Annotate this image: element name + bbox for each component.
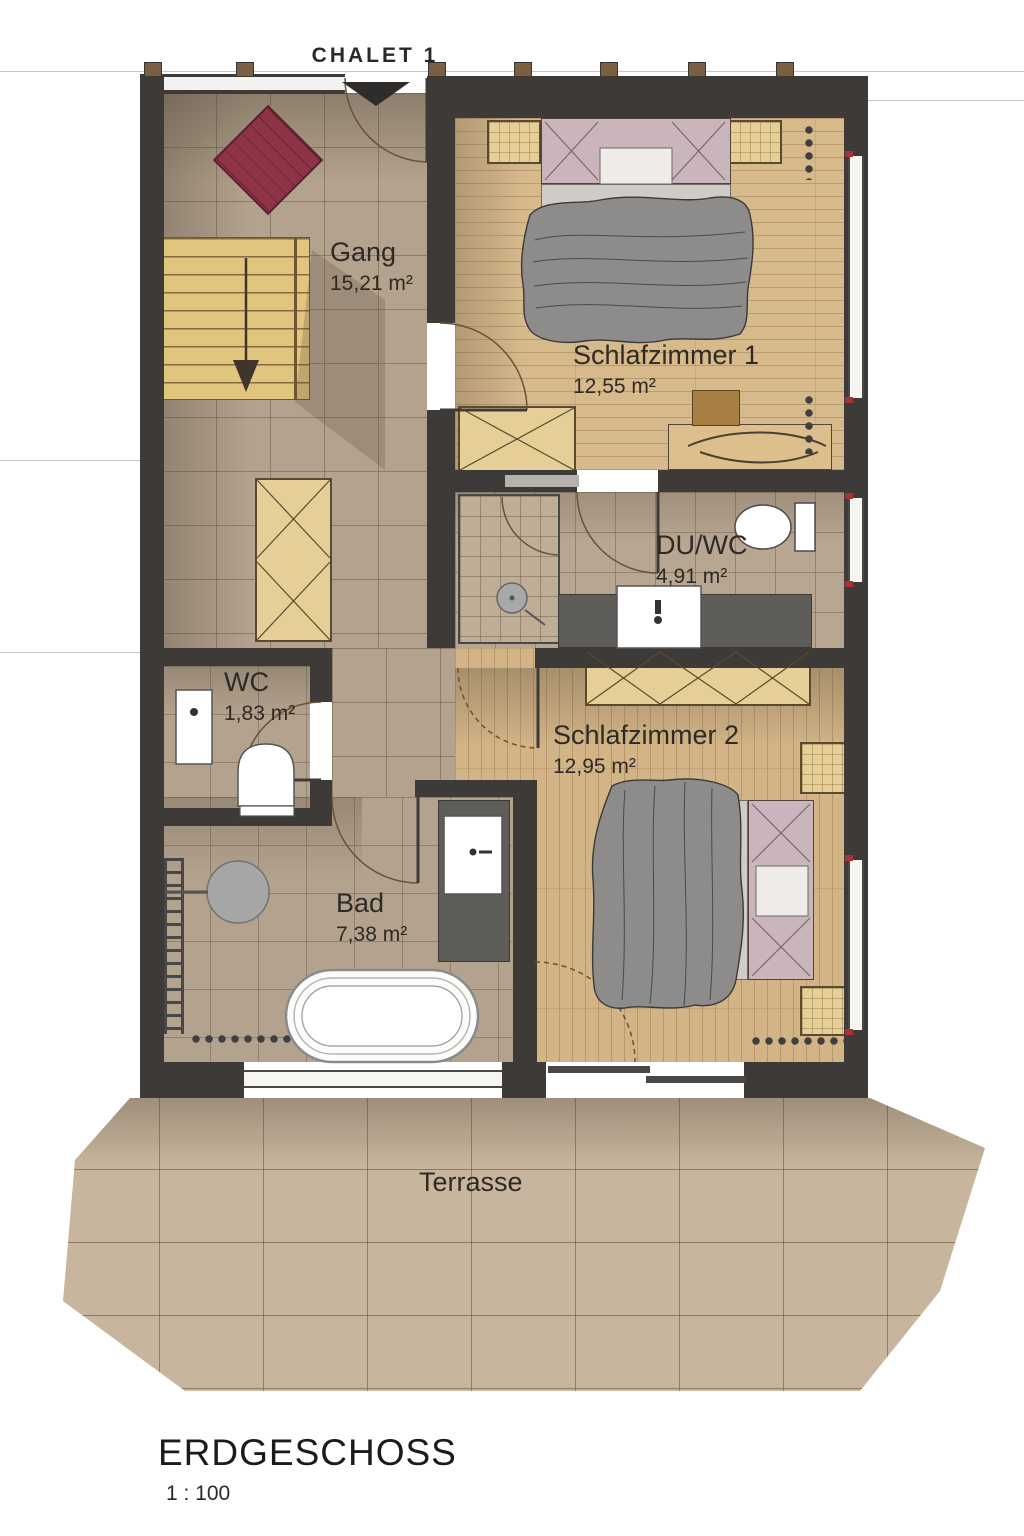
wall xyxy=(162,808,332,826)
hall-cabinet xyxy=(255,478,332,642)
bed2-sheet xyxy=(648,800,748,980)
room-area: 7,38 m² xyxy=(336,923,407,946)
front-glazing xyxy=(140,77,345,90)
room-area: 4,91 m² xyxy=(656,565,747,588)
corridor-floor xyxy=(332,648,455,798)
nightstand xyxy=(800,986,846,1036)
window-marker xyxy=(845,493,853,499)
room-name: Gang xyxy=(330,238,413,268)
window-marker xyxy=(845,397,853,403)
guide-line xyxy=(0,460,140,461)
window-marker xyxy=(845,1029,853,1035)
room-label-gang: Gang 15,21 m² xyxy=(330,238,413,295)
towel-radiator xyxy=(164,858,184,1034)
post xyxy=(776,62,794,77)
room-name: Schlafzimmer 1 xyxy=(573,341,759,371)
entrance-arrow-icon xyxy=(342,82,410,106)
terrace-window xyxy=(244,1070,502,1088)
wall-bottom xyxy=(140,1062,244,1098)
floor-title: ERDGESCHOSS xyxy=(158,1432,457,1474)
window xyxy=(848,498,864,582)
terrace-slider-door xyxy=(646,1076,746,1083)
room-area: 15,21 m² xyxy=(330,272,413,295)
window-marker xyxy=(845,855,853,861)
room-name: Bad xyxy=(336,889,407,919)
terrace-paving xyxy=(55,1096,995,1394)
room-name: WC xyxy=(224,668,295,698)
room-label-bad: Bad 7,38 m² xyxy=(336,889,407,946)
post xyxy=(688,62,706,77)
room-label-schlafzimmer1: Schlafzimmer 1 12,55 m² xyxy=(573,341,759,398)
bad-vanity-counter xyxy=(438,800,510,962)
bed1-sheet xyxy=(541,184,731,334)
window-marker xyxy=(845,151,853,157)
room-area: 12,55 m² xyxy=(573,375,759,398)
room-name: Terrasse xyxy=(419,1168,523,1198)
terrace-slider-door xyxy=(548,1066,650,1073)
window xyxy=(848,860,864,1030)
nightstand xyxy=(800,742,846,794)
wall xyxy=(513,797,537,1062)
wall xyxy=(415,780,537,797)
staircase xyxy=(163,237,310,400)
guide-line xyxy=(868,100,1024,101)
stair-stringer xyxy=(294,237,297,400)
room-label-wc: WC 1,83 m² xyxy=(224,668,295,725)
room-label-duwc: DU/WC 4,91 m² xyxy=(656,531,747,588)
room-label-terrasse: Terrasse xyxy=(419,1168,523,1198)
wall xyxy=(140,90,345,94)
guide-line xyxy=(0,652,140,653)
vanity-counter xyxy=(558,594,812,648)
scale-label: 1 : 100 xyxy=(166,1482,230,1506)
wall-bottom xyxy=(744,1062,868,1098)
window xyxy=(848,156,864,398)
wall xyxy=(310,648,332,702)
nightstand xyxy=(487,120,541,164)
shower xyxy=(458,494,560,644)
wall-left xyxy=(140,76,164,1098)
room-label-schlafzimmer2: Schlafzimmer 2 12,95 m² xyxy=(553,721,739,778)
nightstand xyxy=(728,120,782,164)
radiator xyxy=(750,1034,846,1056)
wall xyxy=(427,118,455,323)
wall-top-right xyxy=(427,76,868,118)
wall xyxy=(535,648,868,668)
wall xyxy=(162,648,332,666)
post xyxy=(514,62,532,77)
room-name: DU/WC xyxy=(656,531,747,561)
plan-title: CHALET 1 xyxy=(280,44,470,68)
wall xyxy=(658,470,868,492)
radiator xyxy=(190,1032,312,1054)
wall xyxy=(427,410,455,648)
post xyxy=(600,62,618,77)
room-area: 1,83 m² xyxy=(224,702,295,725)
wall-bottom xyxy=(502,1062,546,1098)
floor-plan-canvas: CHALET 1 xyxy=(0,0,1024,1536)
wardrobe1 xyxy=(458,406,576,472)
post xyxy=(144,62,162,77)
bed1-headboard xyxy=(541,118,731,184)
post xyxy=(236,62,254,77)
window-marker xyxy=(845,581,853,587)
radiator xyxy=(802,394,816,454)
room-name: Schlafzimmer 2 xyxy=(553,721,739,751)
bed2-headboard xyxy=(748,800,814,980)
radiator xyxy=(802,124,816,180)
room-area: 12,95 m² xyxy=(553,755,739,778)
pocket-door xyxy=(505,475,579,487)
